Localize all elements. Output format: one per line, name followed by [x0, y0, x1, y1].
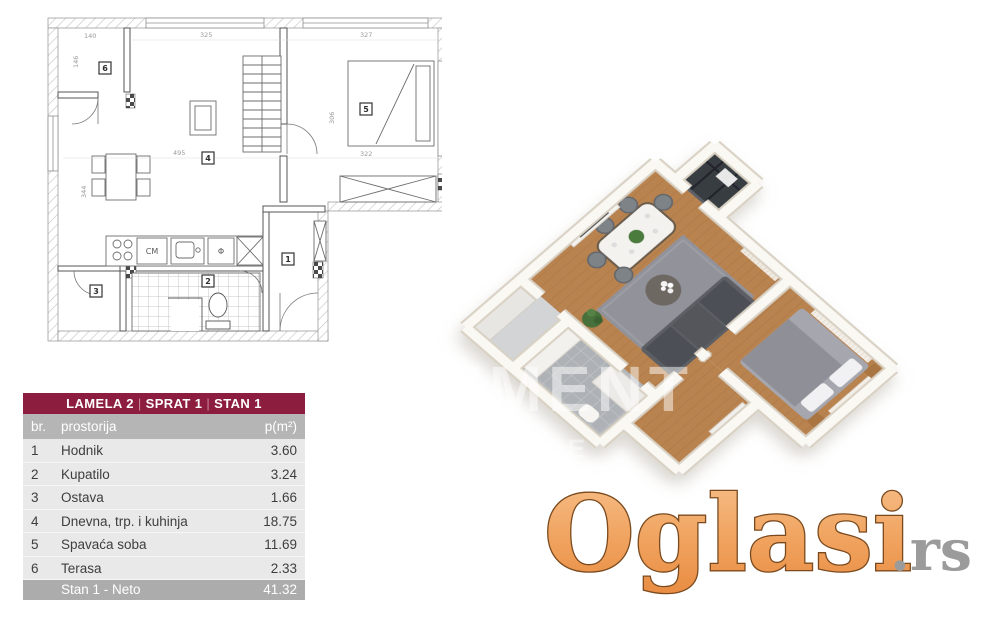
row-number: 1	[31, 439, 61, 463]
table-row: 3 Ostava 1.66	[23, 486, 305, 510]
room-area: 11.69	[264, 533, 297, 557]
room-label-5: 5	[363, 105, 369, 114]
room-label-1: 1	[285, 255, 291, 264]
dim-living-height: 344	[80, 186, 88, 198]
dim-top-left: 325	[200, 31, 212, 39]
column-prostorija: prostorija	[61, 414, 265, 439]
room-label-3: 3	[93, 287, 99, 296]
room-area: 18.75	[263, 510, 297, 534]
dim-terrace-width: 140	[84, 32, 96, 40]
table-footer: Stan 1 - Neto 41.32	[23, 580, 305, 600]
table-column-header: br. prostorija p(m²)	[23, 414, 305, 439]
title-separator: |	[134, 396, 146, 411]
table-row: 4 Dnevna, trp. i kuhinja 18.75	[23, 510, 305, 534]
room-label-6: 6	[102, 64, 108, 73]
developer-watermark-line1: EMENT	[440, 353, 694, 425]
column-area: p(m²)	[265, 414, 297, 439]
washing-machine-label: CM	[146, 247, 159, 256]
table-row: 5 Spavaća soba 11.69	[23, 533, 305, 557]
table-row: 1 Hodnik 3.60	[23, 439, 305, 463]
column-br: br.	[31, 414, 61, 439]
room-label-2: 2	[205, 277, 211, 286]
room-name: Terasa	[61, 557, 271, 581]
room-label-4: 4	[205, 154, 211, 163]
table-row: 6 Terasa 2.33	[23, 557, 305, 581]
row-number: 5	[31, 533, 61, 557]
table-title: LAMELA 2|SPRAT 1|STAN 1	[23, 393, 305, 414]
footer-total: 41.32	[263, 580, 297, 600]
room-area: 3.60	[271, 439, 297, 463]
room-name: Kupatilo	[61, 463, 271, 487]
room-area: 1.66	[271, 486, 297, 510]
area-table: LAMELA 2|SPRAT 1|STAN 1 br. prostorija p…	[23, 393, 305, 600]
room-name: Dnevna, trp. i kuhinja	[61, 510, 263, 534]
dim-living-width: 495	[173, 149, 185, 157]
room-name: Hodnik	[61, 439, 271, 463]
dishwasher-label: Φ	[218, 247, 224, 256]
dim-bedroom-height: 306	[328, 112, 336, 124]
row-number: 3	[31, 486, 61, 510]
developer-watermark-line2: NINE	[470, 434, 603, 464]
table-title-lamela: LAMELA 2	[66, 396, 134, 411]
table-row: 2 Kupatilo 3.24	[23, 463, 305, 487]
dim-top-right: 327	[360, 31, 372, 39]
footer-label: Stan 1 - Neto	[61, 580, 263, 600]
room-area: 3.24	[271, 463, 297, 487]
floorplan-2d: 140 146 325 327 495 344 306 322 CM Φ 1 2…	[18, 6, 442, 354]
dim-terrace-height: 146	[72, 56, 80, 68]
oglasi-brand-text: Oglasi	[544, 472, 912, 595]
table-title-stan: STAN 1	[214, 396, 262, 411]
row-number: 4	[31, 510, 61, 534]
site-watermark: Oglasi .rs	[538, 466, 1000, 626]
room-name: Ostava	[61, 486, 271, 510]
room-name: Spavaća soba	[61, 533, 264, 557]
room-area: 2.33	[271, 557, 297, 581]
row-number: 6	[31, 557, 61, 581]
table-title-sprat: SPRAT 1	[146, 396, 203, 411]
title-separator: |	[202, 396, 214, 411]
row-number: 2	[31, 463, 61, 487]
oglasi-tld-text: .rs	[890, 517, 972, 584]
dim-bedroom-width: 322	[360, 150, 372, 158]
